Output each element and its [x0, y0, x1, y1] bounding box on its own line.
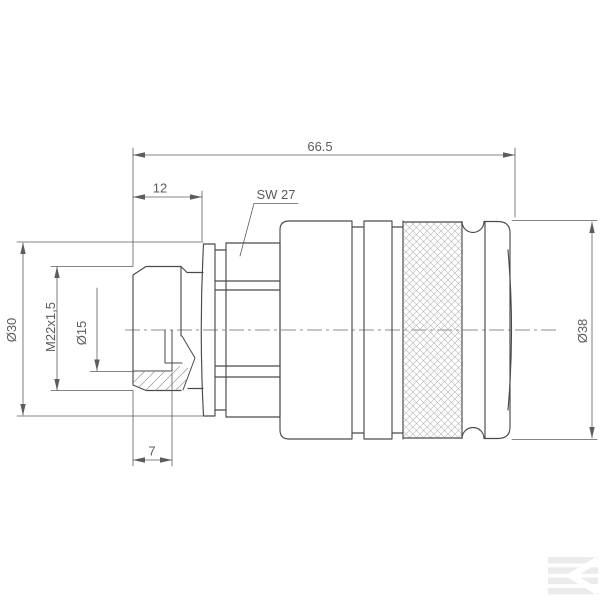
coupling-technical-drawing: 66.5 12 SW 27 7 Ø30 M22x1,5 Ø15 Ø38 [0, 0, 600, 600]
dim-thread-spec-label: M22x1,5 [43, 302, 58, 352]
dim-wrench-size-label: SW 27 [256, 187, 295, 202]
knurl-pattern-fill [404, 223, 462, 438]
internal-valve-section [133, 330, 195, 390]
dim-body-diameter-label: Ø38 [575, 319, 590, 344]
dim-bore-depth-label: 7 [148, 444, 155, 459]
dim-bore-diameter-label: Ø15 [74, 321, 89, 346]
dim-flange-diameter-label: Ø30 [4, 318, 19, 343]
watermark-k-logo [548, 557, 598, 594]
section-hatching [110, 358, 212, 412]
technical-drawing-page: 66.5 12 SW 27 7 Ø30 M22x1,5 Ø15 Ø38 [0, 0, 600, 600]
watermark-k-cutout [571, 560, 598, 593]
sw27-leader-line [240, 204, 298, 257]
hatch-lines [110, 358, 212, 412]
dim-thread-length-label: 12 [153, 181, 167, 196]
dimension-measure-lines [23, 155, 592, 460]
neck [181, 267, 203, 389]
dim-overall-length-label: 66.5 [307, 139, 332, 154]
